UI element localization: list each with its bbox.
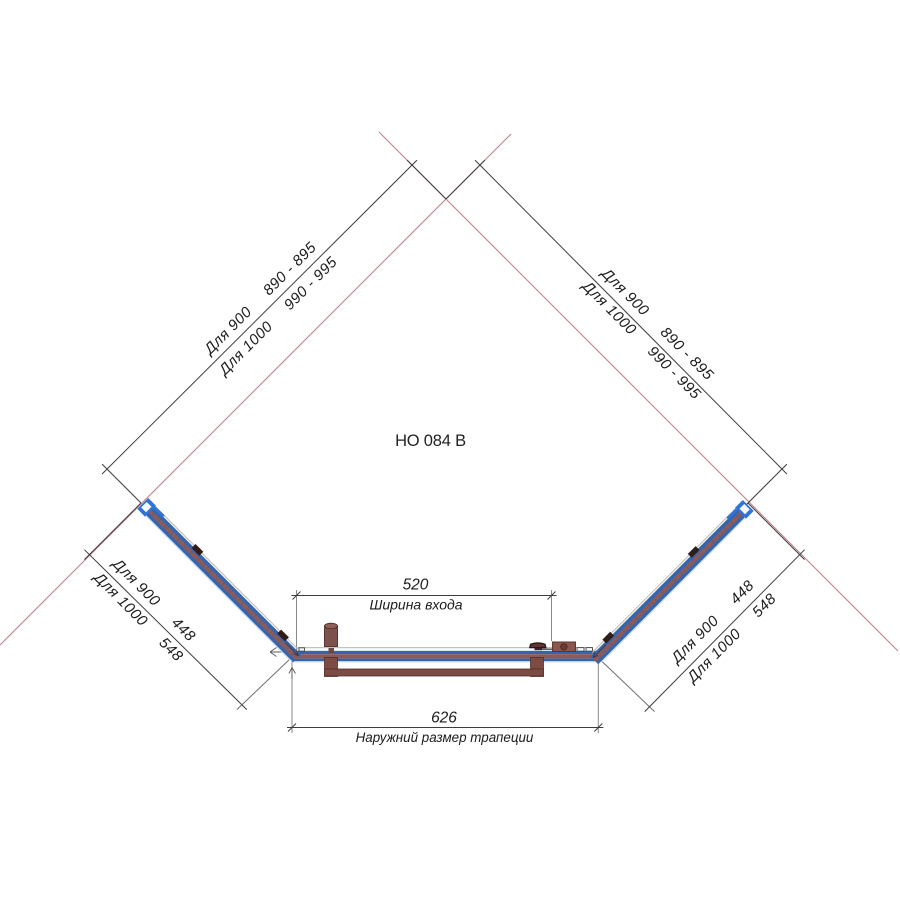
svg-text:626: 626 xyxy=(431,710,457,727)
svg-text:520: 520 xyxy=(403,577,429,594)
svg-text:Наружний размер трапеции: Наружний размер трапеции xyxy=(356,730,534,745)
svg-text:Ширина входа: Ширина входа xyxy=(369,597,462,613)
svg-text:HO 084 B: HO 084 B xyxy=(395,432,466,450)
